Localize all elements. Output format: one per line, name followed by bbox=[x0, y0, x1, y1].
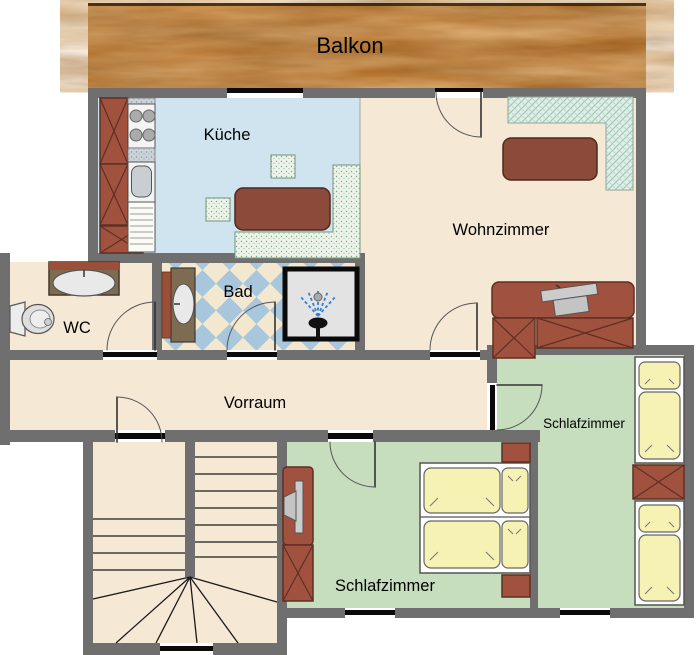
bedroom-right-window bbox=[560, 608, 610, 618]
kitchen-sink bbox=[128, 162, 155, 202]
duvet bbox=[639, 535, 680, 601]
coffee-table bbox=[503, 138, 597, 180]
label-livingroom: Wohnzimmer bbox=[453, 221, 550, 239]
burner bbox=[143, 110, 155, 122]
floorplan-page: Balkon bbox=[0, 0, 700, 655]
wall-living-right bbox=[636, 88, 646, 355]
wall-stair-center bbox=[185, 440, 195, 577]
stairwell-bottom-door-opening bbox=[160, 643, 213, 655]
label-bathroom: Bad bbox=[223, 283, 252, 301]
duvet bbox=[424, 468, 500, 513]
single-bed-bottom bbox=[635, 501, 684, 605]
kitchen-window bbox=[227, 88, 303, 98]
wall-hallway-bottom bbox=[0, 430, 540, 442]
label-hallway: Vorraum bbox=[224, 394, 286, 412]
burner bbox=[130, 110, 142, 122]
kitchen-table bbox=[235, 188, 330, 230]
kitchen-stool bbox=[206, 198, 230, 221]
bedroom-right-furniture bbox=[633, 357, 684, 605]
pillow bbox=[502, 468, 528, 513]
stove bbox=[128, 104, 155, 148]
burner bbox=[143, 129, 155, 141]
wall-stair-left bbox=[83, 440, 93, 655]
wall-kitchen-left bbox=[88, 88, 98, 263]
kitchen-counter bbox=[128, 148, 155, 162]
wall-bedrooms-bottom bbox=[277, 608, 694, 618]
double-bed bbox=[420, 463, 530, 573]
wall-outer-left bbox=[0, 253, 10, 445]
duvet bbox=[424, 521, 500, 568]
balcony: Balkon bbox=[88, 3, 646, 88]
toilet bbox=[10, 302, 54, 336]
dish-rack bbox=[128, 202, 155, 252]
wall-between-bedrooms bbox=[530, 430, 538, 608]
balcony-top-edge bbox=[88, 3, 646, 6]
pillow bbox=[639, 362, 680, 389]
nightstand bbox=[502, 575, 530, 597]
floorplan-drawing: Balkon bbox=[0, 0, 700, 655]
wall-bedroom-right-left-upper bbox=[487, 355, 497, 385]
balcony-label: Balkon bbox=[316, 33, 383, 58]
shower bbox=[285, 269, 357, 339]
label-kitchen: Küche bbox=[204, 126, 251, 144]
single-bed-top bbox=[635, 357, 684, 463]
bedroom-bottom-window bbox=[345, 608, 395, 618]
kitchen-stool bbox=[271, 155, 295, 178]
kitchen-counter-strip bbox=[128, 98, 155, 104]
burner bbox=[130, 129, 142, 141]
label-bedroom-right: Schlafzimmer bbox=[543, 416, 625, 431]
label-wc: WC bbox=[63, 319, 91, 337]
pillow bbox=[502, 521, 528, 568]
pillow bbox=[639, 505, 680, 532]
wc-sink bbox=[49, 262, 119, 296]
wall-wc-bath-divider bbox=[152, 262, 162, 360]
wall-bedroom-right-outer bbox=[684, 345, 694, 618]
nightstand bbox=[502, 443, 530, 462]
duvet bbox=[639, 392, 680, 459]
bathroom-sink bbox=[162, 268, 195, 342]
label-bedroom-bottom: Schlafzimmer bbox=[335, 577, 435, 595]
